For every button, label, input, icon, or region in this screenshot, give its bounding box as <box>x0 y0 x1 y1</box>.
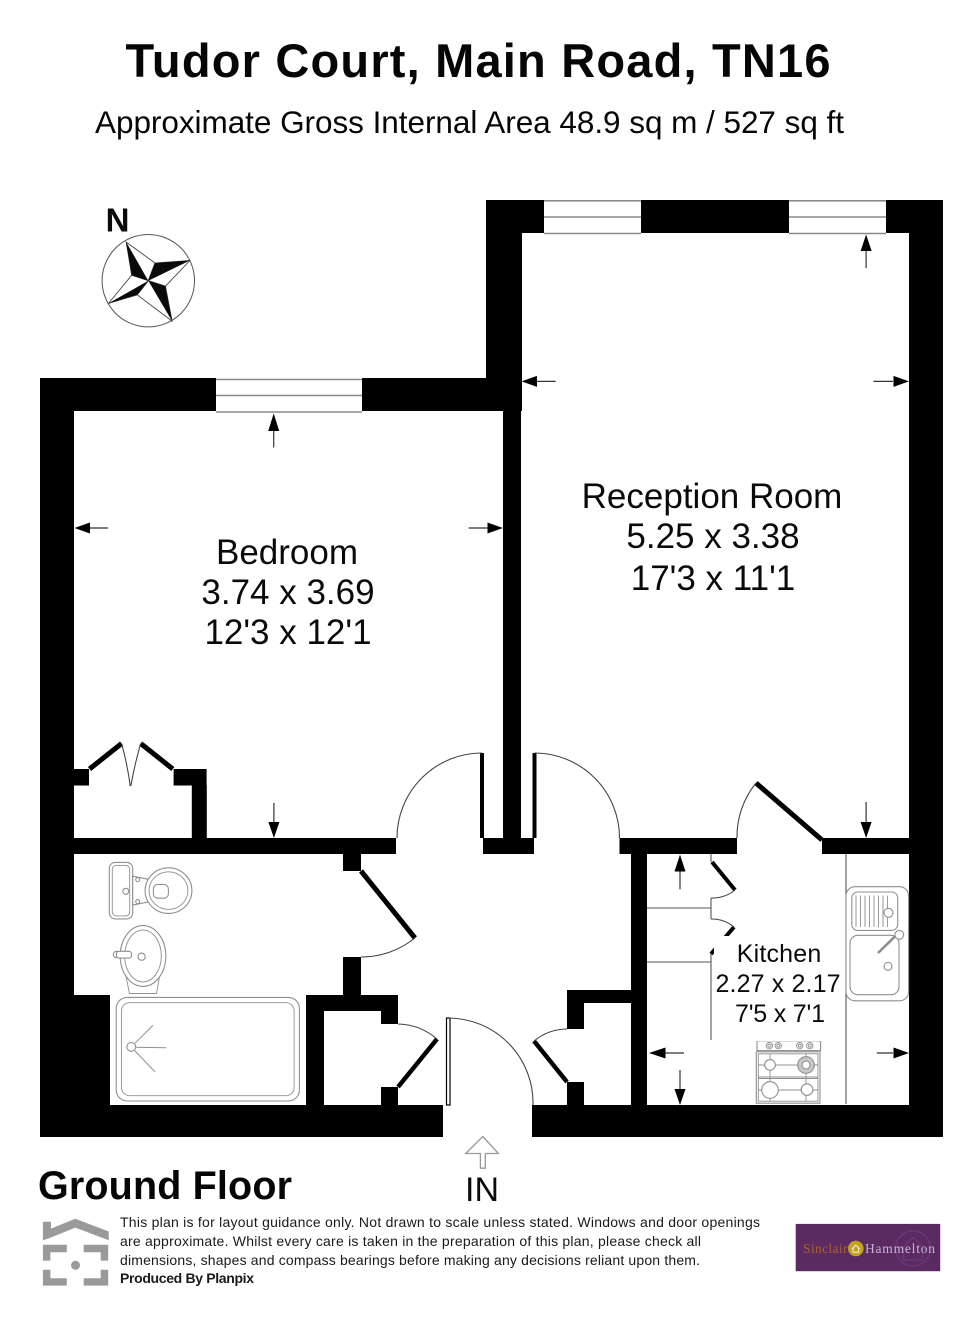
svg-text:Kitchen: Kitchen <box>737 940 822 968</box>
svg-text:5.25 x 3.38: 5.25 x 3.38 <box>626 517 799 556</box>
svg-text:This plan is for layout guidan: This plan is for layout guidance only. N… <box>120 1214 760 1230</box>
svg-text:Hammelton: Hammelton <box>865 1241 935 1256</box>
svg-text:IN: IN <box>465 1171 499 1209</box>
svg-text:Produced By Planpix: Produced By Planpix <box>120 1270 254 1286</box>
svg-text:Ground Floor: Ground Floor <box>38 1164 292 1208</box>
svg-text:12'3 x 12'1: 12'3 x 12'1 <box>204 613 371 652</box>
svg-text:Approximate Gross Internal Are: Approximate Gross Internal Area 48.9 sq … <box>95 104 844 140</box>
svg-text:2.27 x 2.17: 2.27 x 2.17 <box>716 970 841 998</box>
svg-text:are approximate. Whilst every: are approximate. Whilst every care is ta… <box>120 1233 701 1249</box>
svg-text:Bedroom: Bedroom <box>216 533 358 572</box>
svg-text:N: N <box>106 202 130 239</box>
svg-text:Tudor Court, Main Road, TN16: Tudor Court, Main Road, TN16 <box>126 34 831 87</box>
svg-text:17'3 x 11'1: 17'3 x 11'1 <box>631 559 796 598</box>
svg-text:3.74 x 3.69: 3.74 x 3.69 <box>201 573 374 612</box>
svg-text:Reception Room: Reception Room <box>582 477 843 516</box>
svg-text:Sinclair: Sinclair <box>803 1241 848 1256</box>
svg-text:7'5 x 7'1: 7'5 x 7'1 <box>735 1000 825 1028</box>
svg-text:dimensions, shapes and compass: dimensions, shapes and compass bearings … <box>120 1252 700 1268</box>
